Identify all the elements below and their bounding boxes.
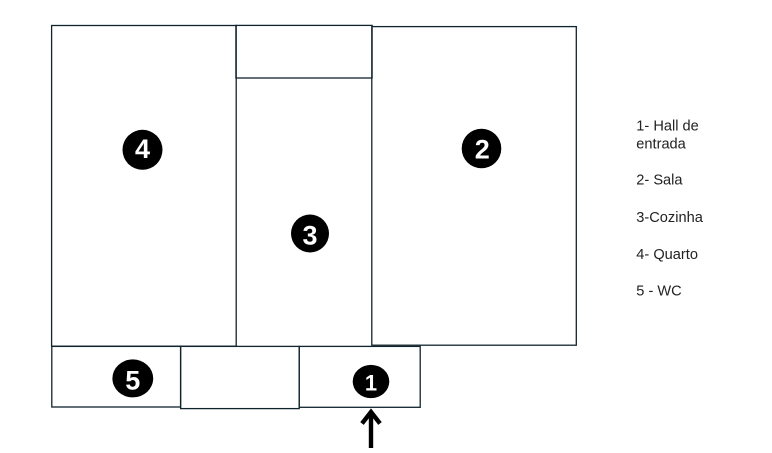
svg-text:3-Cozinha: 3-Cozinha: [636, 210, 703, 226]
svg-text:4: 4: [135, 134, 150, 164]
svg-text:2: 2: [475, 135, 490, 165]
svg-text:entrada: entrada: [636, 136, 686, 152]
svg-text:5 - WC: 5 - WC: [636, 284, 681, 300]
svg-text:5: 5: [125, 365, 140, 395]
svg-text:2- Sala: 2- Sala: [636, 173, 683, 189]
svg-text:4- Quarto: 4- Quarto: [636, 247, 698, 263]
svg-text:3: 3: [302, 220, 317, 250]
svg-text:1- Hall de: 1- Hall de: [636, 119, 698, 135]
svg-text:1: 1: [365, 370, 377, 395]
